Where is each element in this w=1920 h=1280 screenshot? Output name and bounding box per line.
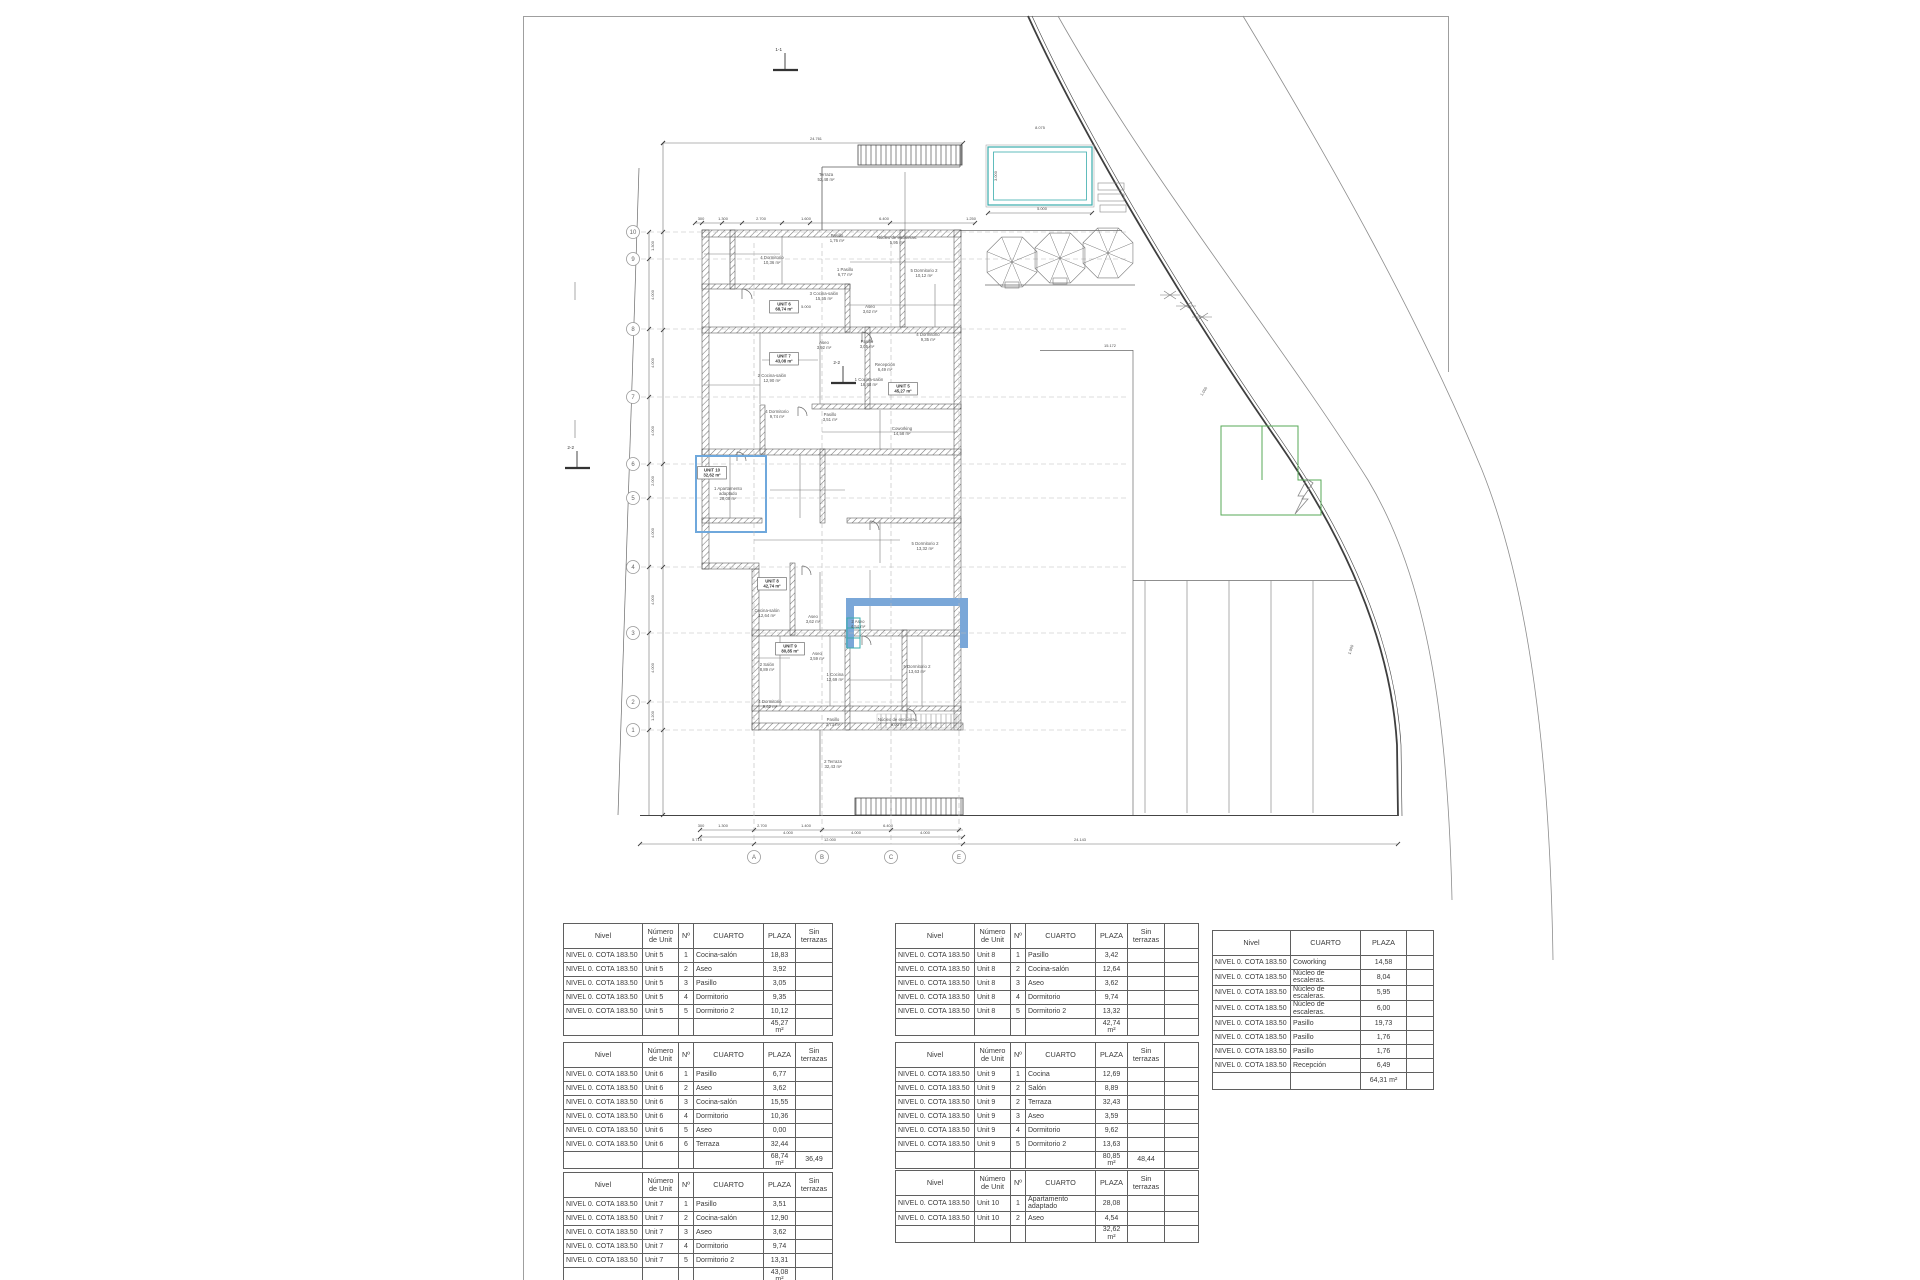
column-header: Nº <box>679 1173 694 1198</box>
svg-text:Terraza52,48 m²: Terraza52,48 m² <box>818 172 836 182</box>
column-header: PLAZA <box>1096 1043 1128 1068</box>
column-header: CUARTO <box>1026 1043 1096 1068</box>
floor-plan-sheet: 10987654321ABCETerraza52,48 m²Pasillo1,7… <box>0 0 1920 1280</box>
column-header: Sin terrazas <box>1128 924 1165 949</box>
column-header: PLAZA <box>1096 924 1128 949</box>
svg-text:5.000: 5.000 <box>1037 206 1048 211</box>
column-header: Nivel <box>1213 931 1291 956</box>
column-header: PLAZA <box>764 1043 796 1068</box>
column-header <box>1165 1171 1199 1196</box>
column-header: Número de Unit <box>975 924 1011 949</box>
svg-text:4.000: 4.000 <box>650 594 655 605</box>
column-header: CUARTO <box>1026 924 1096 949</box>
svg-text:5.000: 5.000 <box>801 304 812 309</box>
svg-text:Recepción6,49 m²: Recepción6,49 m² <box>875 362 896 372</box>
svg-text:A: A <box>752 855 756 861</box>
area-table-unit10: NivelNúmero de UnitNºCUARTOPLAZASin terr… <box>895 1170 1199 1243</box>
table-row: NIVEL 0. COTA 183.50Unit 102Aseo4,54 <box>896 1211 1199 1225</box>
table-row: NIVEL 0. COTA 183.50Unit 64Dormitorio10,… <box>564 1110 833 1124</box>
svg-text:Aseo3,62 m²: Aseo3,62 m² <box>806 614 821 624</box>
svg-text:300: 300 <box>698 823 705 828</box>
area-table-common: NivelCUARTOPLAZANIVEL 0. COTA 183.50Cowo… <box>1212 930 1434 1090</box>
svg-text:1.300: 1.300 <box>650 240 655 251</box>
svg-text:1 Apartamentoadaptado28,08 m²: 1 Apartamentoadaptado28,08 m² <box>714 486 743 501</box>
svg-text:5 Dormitorio 213,63 m²: 5 Dormitorio 213,63 m² <box>904 664 932 674</box>
table-row: NIVEL 0. COTA 183.50Núcleo de escaleras.… <box>1213 985 1434 1001</box>
column-header: PLAZA <box>764 924 796 949</box>
svg-text:1.250: 1.250 <box>966 216 977 221</box>
column-header: Número de Unit <box>643 1173 679 1198</box>
svg-text:Pasillo3,05 m²: Pasillo3,05 m² <box>860 339 875 349</box>
svg-text:Pasillo3,73 m²: Pasillo3,73 m² <box>826 717 841 727</box>
column-header: PLAZA <box>1096 1171 1128 1196</box>
table-row: NIVEL 0. COTA 183.50Unit 54Dormitorio9,3… <box>564 991 833 1005</box>
svg-text:UNIT 1032,62 m²: UNIT 1032,62 m² <box>703 468 721 478</box>
column-header: Sin terrazas <box>1128 1171 1165 1196</box>
svg-text:Núcleo de escaleras.5,95 m²: Núcleo de escaleras.5,95 m² <box>877 235 917 245</box>
svg-text:Cocina-salón12,64 m²: Cocina-salón12,64 m² <box>754 608 780 618</box>
svg-text:4.000: 4.000 <box>650 289 655 300</box>
svg-text:UNIT 980,85 m²: UNIT 980,85 m² <box>781 644 799 654</box>
area-table-unit5: NivelNúmero de UnitNºCUARTOPLAZASin terr… <box>563 923 833 1036</box>
svg-text:12.000: 12.000 <box>824 837 837 842</box>
svg-text:4.000: 4.000 <box>650 425 655 436</box>
svg-text:5 Dormitorio 210,12 m²: 5 Dormitorio 210,12 m² <box>911 268 939 278</box>
svg-text:1.000: 1.000 <box>1347 643 1355 655</box>
column-header: Nivel <box>564 924 643 949</box>
column-header <box>1165 924 1199 949</box>
table-row: NIVEL 0. COTA 183.50Coworking14,58 <box>1213 956 1434 970</box>
table-row: NIVEL 0. COTA 183.50Unit 53Pasillo3,05 <box>564 977 833 991</box>
column-header: Nivel <box>564 1043 643 1068</box>
svg-text:2.700: 2.700 <box>756 216 767 221</box>
column-header: Nº <box>679 1043 694 1068</box>
table-row: NIVEL 0. COTA 183.50Pasillo1,76 <box>1213 1045 1434 1059</box>
column-header: Nº <box>679 924 694 949</box>
table-row: NIVEL 0. COTA 183.50Unit 65Aseo0,00 <box>564 1124 833 1138</box>
svg-text:2.700: 2.700 <box>757 823 768 828</box>
table-row: NIVEL 0. COTA 183.50Unit 52Aseo3,92 <box>564 963 833 977</box>
column-header: Nº <box>1011 1043 1026 1068</box>
svg-text:5.715: 5.715 <box>692 837 702 842</box>
column-header: PLAZA <box>1361 931 1407 956</box>
svg-text:1.400: 1.400 <box>801 823 812 828</box>
svg-text:Pasillo1,76 m²: Pasillo1,76 m² <box>830 233 845 243</box>
svg-text:4.000: 4.000 <box>650 357 655 368</box>
table-row: NIVEL 0. COTA 183.50Unit 74Dormitorio9,7… <box>564 1240 833 1254</box>
column-header: Número de Unit <box>975 1171 1011 1196</box>
column-header: Número de Unit <box>975 1043 1011 1068</box>
table-row: NIVEL 0. COTA 183.50Unit 61Pasillo6,77 <box>564 1068 833 1082</box>
svg-text:Aseo3,92 m²: Aseo3,92 m² <box>817 340 832 350</box>
column-header: CUARTO <box>694 1043 764 1068</box>
svg-text:Aseo3,62 m²: Aseo3,62 m² <box>863 304 878 314</box>
svg-text:1 Cocina-salón18,83 m²: 1 Cocina-salón18,83 m² <box>855 377 884 387</box>
dimension-ticks <box>638 141 1400 846</box>
table-row: NIVEL 0. COTA 183.50Unit 82Cocina-salón1… <box>896 963 1199 977</box>
table-total-row: 45,27 m² <box>564 1019 833 1036</box>
doors <box>737 289 916 718</box>
table-row: NIVEL 0. COTA 183.50Unit 94Dormitorio9,6… <box>896 1124 1199 1138</box>
table-row: NIVEL 0. COTA 183.50Unit 101Apartamento … <box>896 1196 1199 1212</box>
table-row: NIVEL 0. COTA 183.50Unit 84Dormitorio9,7… <box>896 991 1199 1005</box>
stairs-top-band <box>858 145 962 165</box>
column-header: Sin terrazas <box>796 1043 833 1068</box>
svg-text:4.000: 4.000 <box>783 830 794 835</box>
table-row: NIVEL 0. COTA 183.50Unit 66Terraza32,44 <box>564 1138 833 1152</box>
svg-text:Coworking14,58 m²: Coworking14,58 m² <box>892 426 913 436</box>
column-header: CUARTO <box>1291 931 1361 956</box>
column-header: Sin terrazas <box>1128 1043 1165 1068</box>
svg-text:1 Pasillo6,77 m²: 1 Pasillo6,77 m² <box>837 267 854 277</box>
svg-text:2 Cocina-salón12,90 m²: 2 Cocina-salón12,90 m² <box>758 373 787 383</box>
svg-text:3.000: 3.000 <box>993 170 998 181</box>
area-table-unit9: NivelNúmero de UnitNºCUARTOPLAZASin terr… <box>895 1042 1199 1169</box>
svg-text:4.000: 4.000 <box>851 830 862 835</box>
table-row: NIVEL 0. COTA 183.50Unit 92Salón8,89 <box>896 1082 1199 1096</box>
column-header: Sin terrazas <box>796 1173 833 1198</box>
table-row: NIVEL 0. COTA 183.50Unit 91Cocina12,69 <box>896 1068 1199 1082</box>
svg-text:Pasillo3,51 m²: Pasillo3,51 m² <box>823 412 838 422</box>
svg-text:UNIT 743,08 m²: UNIT 743,08 m² <box>775 354 793 364</box>
parking-stalls <box>1145 580 1313 813</box>
table-total-row: 43,08 m² <box>564 1268 833 1280</box>
table-row: NIVEL 0. COTA 183.50Unit 85Dormitorio 21… <box>896 1005 1199 1019</box>
column-header: Nivel <box>564 1173 643 1198</box>
table-row: NIVEL 0. COTA 183.50Unit 95Dormitorio 21… <box>896 1138 1199 1152</box>
column-header <box>1165 1043 1199 1068</box>
table-row: NIVEL 0. COTA 183.50Recepción6,49 <box>1213 1059 1434 1073</box>
lightning-icon <box>1295 479 1313 514</box>
table-row: NIVEL 0. COTA 183.50Unit 63Cocina-salón1… <box>564 1096 833 1110</box>
site-boundary <box>618 16 1402 816</box>
table-total-row: 64,31 m² <box>1213 1073 1434 1090</box>
svg-text:6.400: 6.400 <box>879 216 890 221</box>
svg-text:Aseo3,59 m²: Aseo3,59 m² <box>810 651 825 661</box>
table-row: NIVEL 0. COTA 183.50Unit 75Dormitorio 21… <box>564 1254 833 1268</box>
svg-text:1-1: 1-1 <box>775 47 782 52</box>
svg-text:4.000: 4.000 <box>650 662 655 673</box>
column-header: CUARTO <box>694 924 764 949</box>
table-row: NIVEL 0. COTA 183.50Unit 93Aseo3,59 <box>896 1110 1199 1124</box>
svg-text:4 Dormitorio9,35 m²: 4 Dormitorio9,35 m² <box>916 332 940 342</box>
svg-text:2 Aseo4,54 m²: 2 Aseo4,54 m² <box>851 619 866 629</box>
table-row: NIVEL 0. COTA 183.50Unit 83Aseo3,62 <box>896 977 1199 991</box>
area-table-unit7: NivelNúmero de UnitNºCUARTOPLAZASin terr… <box>563 1172 833 1280</box>
svg-text:1.200: 1.200 <box>650 710 655 721</box>
svg-text:1.300: 1.300 <box>718 216 729 221</box>
svg-text:1 Cocina12,69 m²: 1 Cocina12,69 m² <box>827 672 845 682</box>
road-curves <box>1058 16 1553 960</box>
column-header: Número de Unit <box>643 1043 679 1068</box>
table-row: NIVEL 0. COTA 183.50Pasillo19,73 <box>1213 1017 1434 1031</box>
svg-text:2-2: 2-2 <box>833 360 840 365</box>
partitions <box>704 172 960 706</box>
table-row: NIVEL 0. COTA 183.50Unit 81Pasillo3,42 <box>896 949 1199 963</box>
table-row: NIVEL 0. COTA 183.50Núcleo de escaleras.… <box>1213 1001 1434 1017</box>
svg-text:UNIT 668,74 m²: UNIT 668,74 m² <box>775 302 793 312</box>
svg-text:4.000: 4.000 <box>650 527 655 538</box>
svg-text:15.172: 15.172 <box>1104 343 1116 348</box>
column-header: CUARTO <box>694 1173 764 1198</box>
svg-text:E: E <box>957 855 961 861</box>
column-header: Nº <box>1011 924 1026 949</box>
svg-text:1.000: 1.000 <box>1199 385 1209 397</box>
column-header: CUARTO <box>1026 1171 1096 1196</box>
column-header: Número de Unit <box>643 924 679 949</box>
table-total-row: 68,74 m²36,49 <box>564 1152 833 1169</box>
svg-text:C: C <box>889 855 894 861</box>
svg-text:5 Dormitorio 213,32 m²: 5 Dormitorio 213,32 m² <box>912 541 940 551</box>
column-header: Nº <box>1011 1171 1026 1196</box>
svg-text:8.075: 8.075 <box>1035 125 1045 130</box>
column-header <box>1407 931 1434 956</box>
column-header: Sin terrazas <box>796 924 833 949</box>
area-table-unit8: NivelNúmero de UnitNºCUARTOPLAZASin terr… <box>895 923 1199 1036</box>
svg-text:300: 300 <box>698 216 705 221</box>
table-row: NIVEL 0. COTA 183.50Unit 62Aseo3,62 <box>564 1082 833 1096</box>
svg-text:2-2: 2-2 <box>567 445 574 450</box>
svg-text:2 Terraza32,43 m²: 2 Terraza32,43 m² <box>824 759 842 769</box>
svg-text:24.143: 24.143 <box>1074 837 1086 842</box>
table-row: NIVEL 0. COTA 183.50Unit 72Cocina-salón1… <box>564 1212 833 1226</box>
table-row: NIVEL 0. COTA 183.50Unit 73Aseo3,62 <box>564 1226 833 1240</box>
table-total-row: 42,74 m² <box>896 1019 1199 1036</box>
area-table-unit6: NivelNúmero de UnitNºCUARTOPLAZASin terr… <box>563 1042 833 1169</box>
table-total-row: 32,62 m² <box>896 1225 1199 1242</box>
svg-text:3 Cocina-salón15,55 m²: 3 Cocina-salón15,55 m² <box>810 291 839 301</box>
parasols <box>987 228 1133 288</box>
table-row: NIVEL 0. COTA 183.50Unit 55Dormitorio 21… <box>564 1005 833 1019</box>
svg-text:10: 10 <box>630 230 637 236</box>
column-header: Nivel <box>896 1043 975 1068</box>
column-header: Nivel <box>896 1171 975 1196</box>
table-row: NIVEL 0. COTA 183.50Unit 92Terraza32,43 <box>896 1096 1199 1110</box>
svg-text:4 Dormitorio10,36 m²: 4 Dormitorio10,36 m² <box>760 255 784 265</box>
column-header: Nivel <box>896 924 975 949</box>
svg-text:2.000: 2.000 <box>650 475 655 486</box>
svg-text:6.400: 6.400 <box>883 823 894 828</box>
table-row: NIVEL 0. COTA 183.50Unit 71Pasillo3,51 <box>564 1198 833 1212</box>
svg-text:UNIT 842,74 m²: UNIT 842,74 m² <box>763 579 781 589</box>
pool <box>986 145 1094 207</box>
table-row: NIVEL 0. COTA 183.50Unit 51Cocina-salón1… <box>564 949 833 963</box>
column-header: PLAZA <box>764 1173 796 1198</box>
svg-text:B: B <box>820 855 824 861</box>
svg-text:2 Salón8,89 m²: 2 Salón8,89 m² <box>760 662 775 672</box>
stairs-bottom-band <box>855 798 963 815</box>
svg-text:4 Dormitorio9,74 m²: 4 Dormitorio9,74 m² <box>765 409 789 419</box>
table-row: NIVEL 0. COTA 183.50Núcleo de escaleras.… <box>1213 970 1434 986</box>
svg-text:1.300: 1.300 <box>718 823 729 828</box>
svg-text:UNIT 545,27 m²: UNIT 545,27 m² <box>894 384 912 394</box>
svg-text:4.000: 4.000 <box>920 830 931 835</box>
svg-text:24.761: 24.761 <box>810 136 822 141</box>
dimension-lines <box>575 143 1398 844</box>
svg-text:1.600: 1.600 <box>801 216 812 221</box>
table-row: NIVEL 0. COTA 183.50Pasillo1,76 <box>1213 1031 1434 1045</box>
grid-bubbles-rows: 10987654321 <box>627 226 1127 737</box>
table-total-row: 80,85 m²48,44 <box>896 1152 1199 1169</box>
